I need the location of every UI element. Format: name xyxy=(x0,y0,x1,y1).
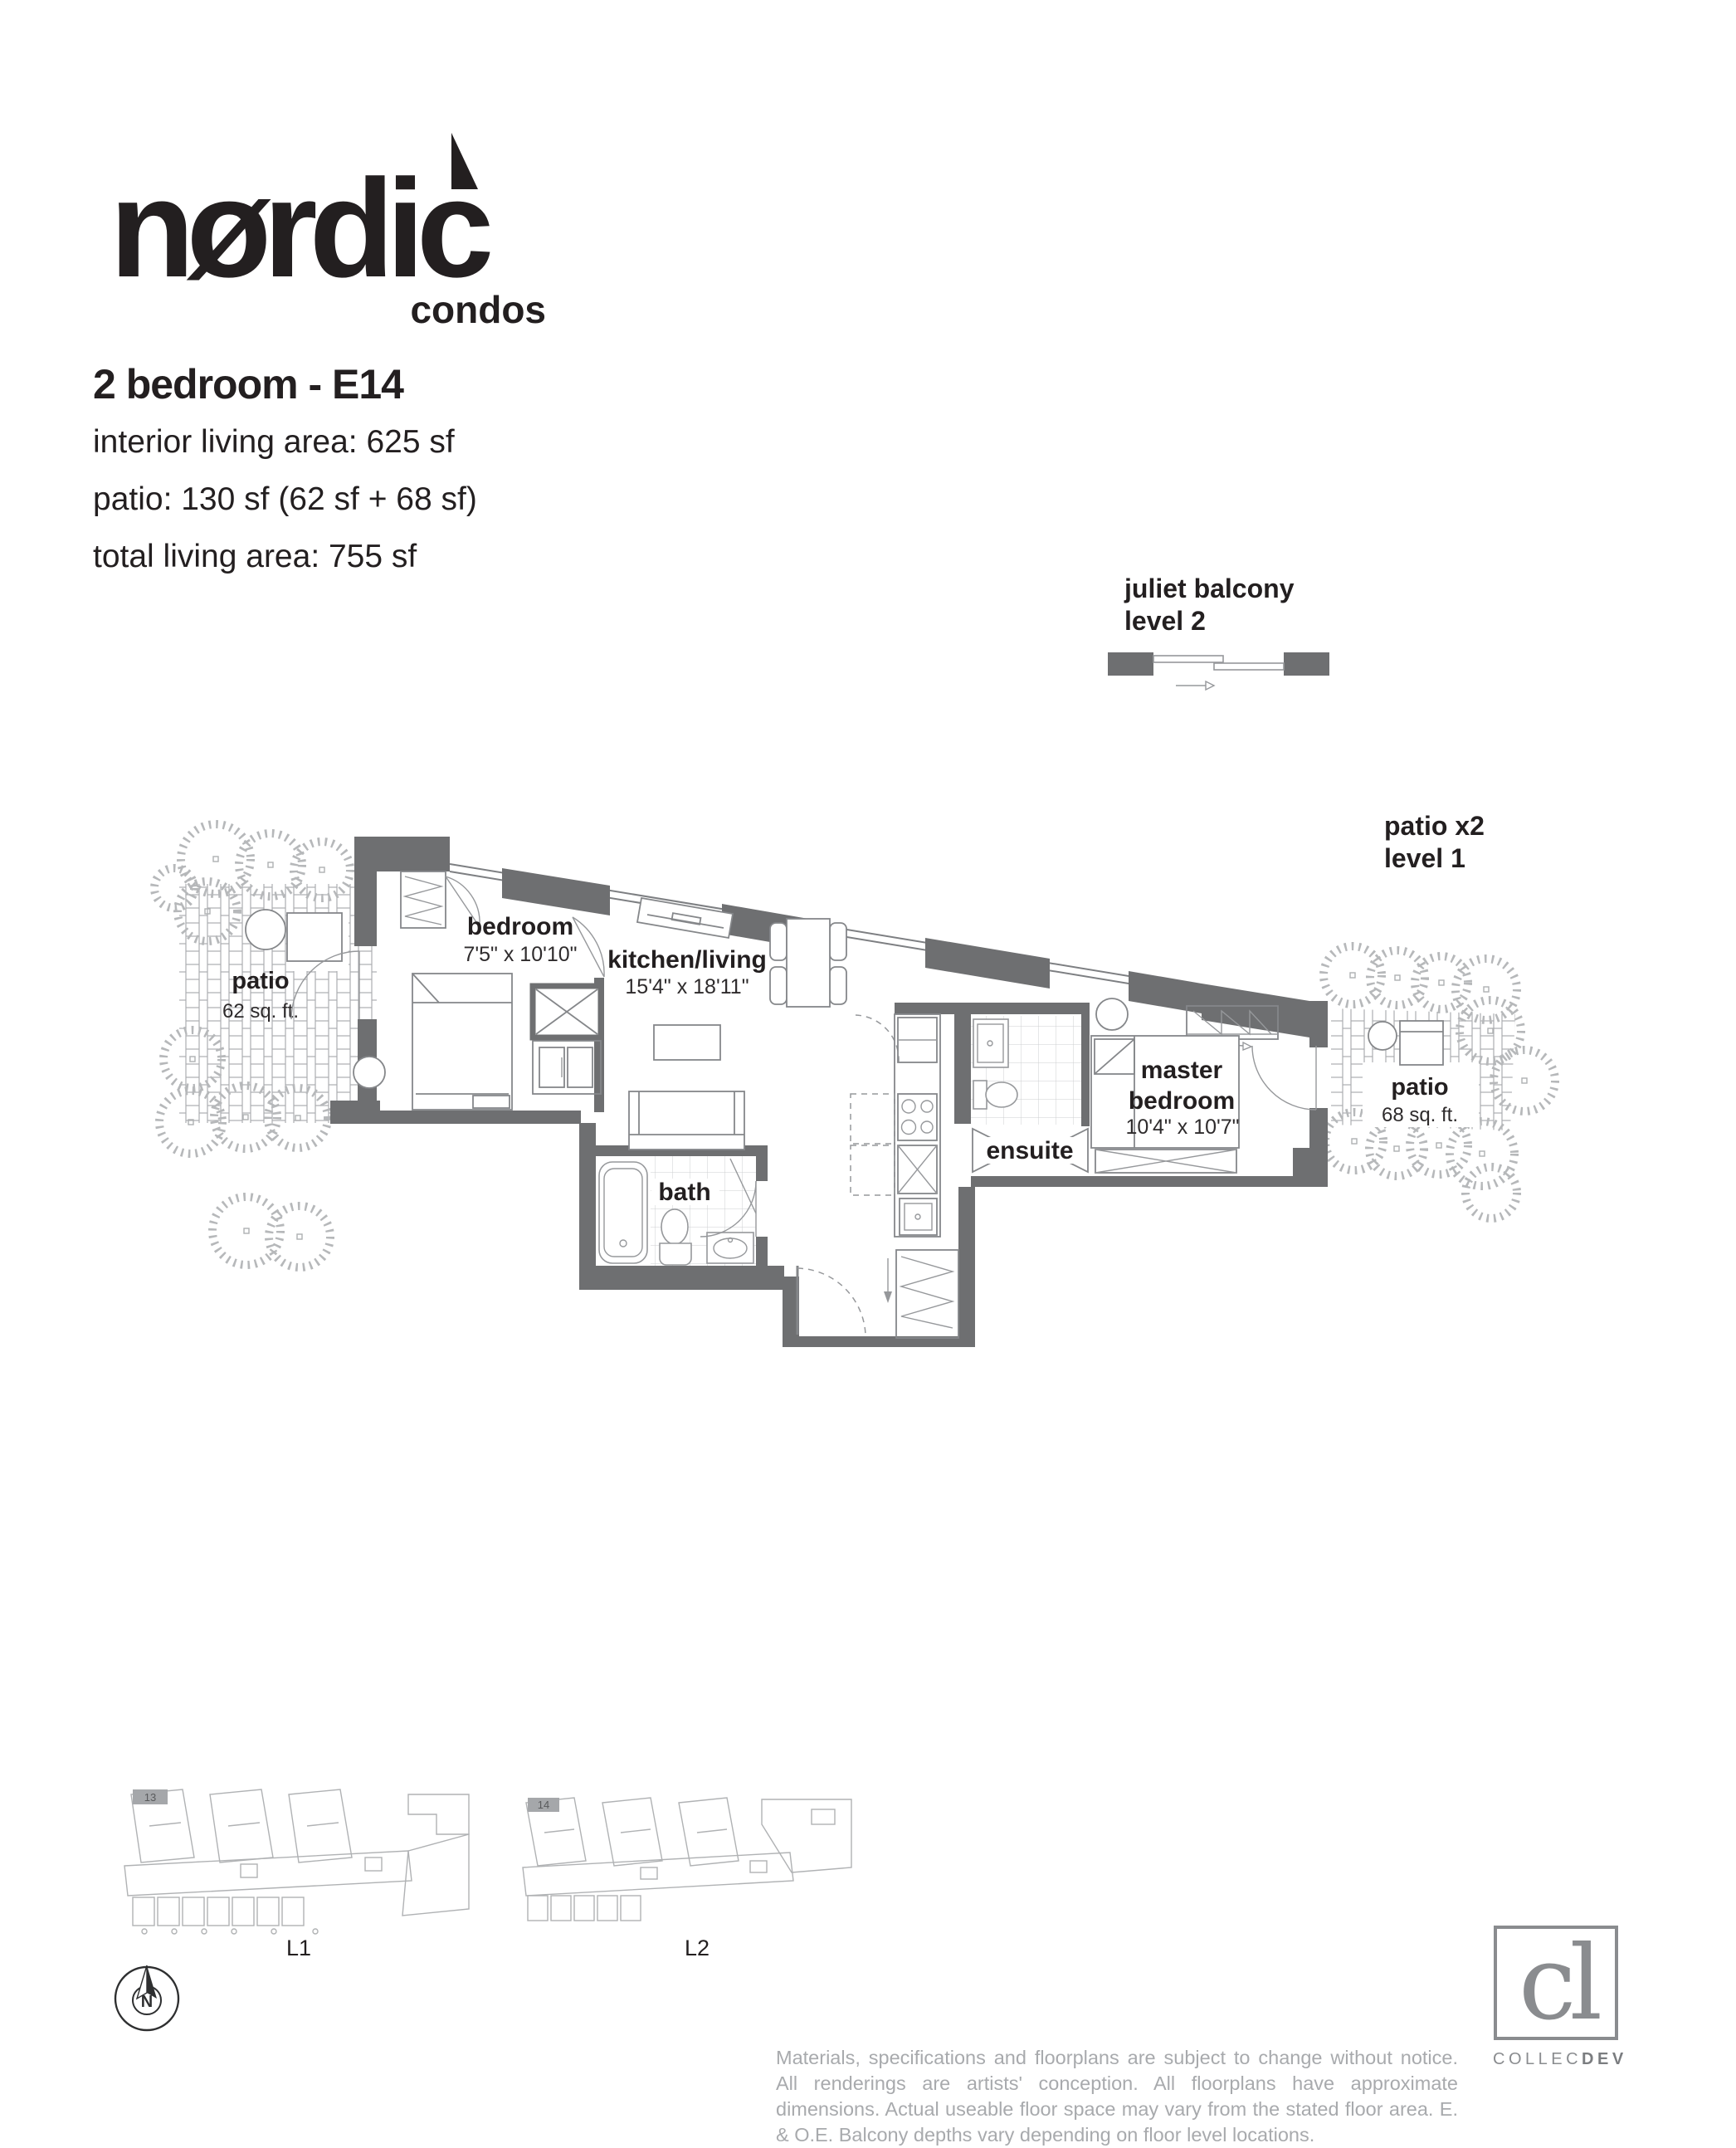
keyplan-l2-unit: 14 xyxy=(538,1799,549,1811)
dining-set xyxy=(770,919,846,1007)
arrow-right-icon xyxy=(1243,1042,1251,1050)
juliet-door-diagram xyxy=(1108,652,1329,690)
sofa xyxy=(629,1091,744,1150)
patio-right-lounge xyxy=(1400,1021,1443,1065)
bath-label: bath xyxy=(658,1179,710,1206)
patio-right-table xyxy=(1368,1022,1397,1050)
master-label-1: master xyxy=(1141,1057,1223,1084)
developer-monogram: cl xyxy=(1519,1926,1599,2043)
patio-left-table xyxy=(287,913,342,961)
bedroom-stool xyxy=(354,1057,385,1088)
bedroom-closet xyxy=(401,871,446,928)
ensuite-toilet xyxy=(973,1081,1017,1109)
developer-name-light: COLLEC xyxy=(1493,2050,1582,2068)
entry-closet xyxy=(896,1250,958,1338)
kitchen-sink xyxy=(900,1198,937,1235)
compass-icon: N xyxy=(110,1960,183,2033)
keyplan-l1: 13 xyxy=(116,1784,473,1938)
developer-name: COLLECDEV xyxy=(1493,2050,1626,2069)
compass-n: N xyxy=(141,1993,153,2011)
entry-door-arc xyxy=(797,1268,866,1335)
ensuite: ensuite xyxy=(971,1016,1088,1172)
patio-left-chair xyxy=(246,910,285,950)
shaft-small xyxy=(898,1145,937,1194)
suite-door-arc xyxy=(856,1015,899,1062)
patio-right-area: 68 sq. ft. xyxy=(1382,1104,1458,1126)
kitchen-living-label: kitchen/living xyxy=(607,946,767,974)
bedroom-wardrobe xyxy=(533,1041,601,1094)
patio-right-label: patio xyxy=(1391,1074,1448,1101)
ensuite-label: ensuite xyxy=(986,1137,1073,1164)
stat-patio: patio: 130 sf (62 sf + 68 sf) xyxy=(93,471,477,528)
coffee-table xyxy=(654,1025,720,1060)
brand-logo: nørdic condos xyxy=(108,115,573,339)
bedroom-label: bedroom xyxy=(467,913,573,940)
keyplan-l1-label: L1 xyxy=(286,1936,311,1960)
page-title: 2 bedroom - E14 xyxy=(93,360,403,408)
developer-logo: cl xyxy=(1494,1926,1620,2043)
stat-interior: interior living area: 625 sf xyxy=(93,413,477,471)
master-label-2: bedroom xyxy=(1129,1087,1235,1115)
developer-name-bold: DEV xyxy=(1582,2050,1627,2068)
brand-sub: condos xyxy=(410,288,546,331)
kitchen-galley xyxy=(851,1014,940,1237)
bath: bath xyxy=(599,1156,756,1266)
juliet-balcony-callout: juliet balcony level 2 xyxy=(1108,573,1340,697)
area-stats: interior living area: 625 sf patio: 130 … xyxy=(93,413,477,585)
keyplan-l2-label: L2 xyxy=(685,1936,710,1960)
patio-left-label: patio xyxy=(232,968,289,994)
patio-right: patio 68 sq. ft. xyxy=(1324,946,1555,1218)
counter-dashed-1 xyxy=(851,1094,895,1144)
patio-callout-line1: patio x2 xyxy=(1384,811,1485,841)
master-dims: 10'4" x 10'7" xyxy=(1125,1115,1239,1139)
juliet-line2: level 2 xyxy=(1124,606,1206,636)
master-side-table xyxy=(1096,998,1128,1030)
bedroom-door xyxy=(573,917,604,977)
patio-left: patio 62 sq. ft. xyxy=(154,824,377,1267)
patio-callout-line2: level 1 xyxy=(1384,843,1465,873)
patio-left-area: 62 sq. ft. xyxy=(222,1000,299,1023)
fridge xyxy=(898,1018,937,1062)
disclaimer-text: Materials, specifications and floorplans… xyxy=(776,2045,1458,2148)
master-patio-door-arc xyxy=(1252,1046,1316,1110)
patio-callout: patio x2 level 1 xyxy=(1384,811,1485,873)
bathtub xyxy=(599,1162,647,1263)
keyplan-l1-unit: 13 xyxy=(144,1791,156,1804)
media-console xyxy=(637,898,733,938)
counter-dashed-2 xyxy=(851,1145,895,1195)
keyplan-l2: 14 xyxy=(516,1791,865,1932)
floor-plan: patio x2 level 1 patio 62 sq. ft. xyxy=(149,788,1593,1419)
master-bottom-closet xyxy=(1095,1150,1236,1173)
bedroom-dims: 7'5" x 10'10" xyxy=(463,943,577,966)
ensuite-sink xyxy=(973,1019,1008,1067)
bath-sink xyxy=(707,1233,753,1263)
arrow-down-icon xyxy=(884,1291,892,1303)
stove xyxy=(898,1094,937,1140)
dining-table xyxy=(787,919,830,1007)
bed xyxy=(412,974,512,1110)
kitchen-living-dims: 15'4" x 18'11" xyxy=(625,975,749,998)
arrow-right-icon xyxy=(1206,681,1214,690)
juliet-line1: juliet balcony xyxy=(1124,574,1295,603)
stat-total: total living area: 755 sf xyxy=(93,528,477,585)
entry xyxy=(797,1250,958,1338)
